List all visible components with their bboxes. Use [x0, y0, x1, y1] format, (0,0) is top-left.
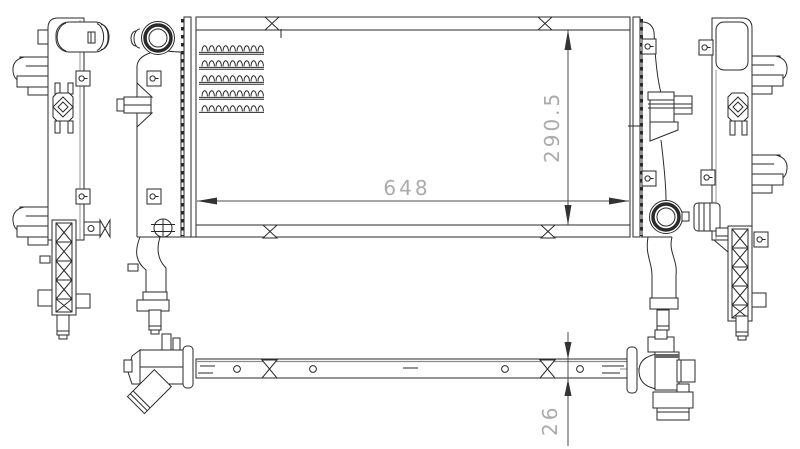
clip-icon [642, 39, 656, 54]
crimp-mark-icon [263, 225, 277, 238]
mount-hook-top [752, 56, 787, 94]
thickness-dimension: 26 [538, 332, 572, 446]
diamond-mount-icon [53, 93, 73, 121]
right-leg [647, 237, 678, 334]
left-leg [128, 237, 169, 334]
width-dimension-label: 648 [383, 176, 430, 200]
lattice-bracket [52, 220, 76, 315]
mount-hook-top [13, 57, 48, 95]
height-dimension-label: 290.5 [540, 91, 564, 163]
radiator-technical-drawing: 648 290.5 26 [0, 0, 800, 449]
width-dimension: 648 [197, 176, 629, 205]
top-hose-port-icon [56, 22, 109, 52]
clip-icon [642, 171, 656, 186]
clip-icon [147, 71, 161, 86]
crimp-mark-icon [541, 225, 555, 238]
clip-icon [147, 189, 161, 204]
thickness-dimension-label: 26 [538, 405, 562, 436]
diamond-mount-icon [728, 93, 748, 121]
butterfly-clip-icon [100, 220, 110, 237]
left-side-view [13, 18, 110, 339]
crimp-mark-icon [265, 17, 279, 30]
height-dimension: 290.5 [540, 30, 572, 225]
side-hose-port-icon [694, 203, 720, 231]
crimp-mark-icon [538, 17, 552, 30]
mount-hook-bottom [13, 207, 48, 245]
clip-icon [754, 232, 768, 247]
clip-icon [701, 170, 715, 185]
lattice-bracket [728, 226, 752, 321]
bottom-view [124, 330, 695, 420]
locating-pin [57, 315, 69, 339]
core [196, 17, 630, 238]
locating-pin [736, 316, 748, 340]
core-fins [199, 46, 264, 113]
mount-hook-bottom [752, 155, 787, 193]
drain-plug-icon [151, 219, 175, 237]
clip-icon [699, 40, 713, 55]
filler-neck-connector [124, 334, 193, 414]
outlet-port-icon [650, 201, 690, 234]
outlet-connector-assembly [620, 330, 695, 420]
clip-icon [76, 71, 90, 86]
right-side-view [694, 18, 787, 340]
inlet-port-icon [131, 22, 175, 55]
clip-icon [76, 189, 90, 204]
